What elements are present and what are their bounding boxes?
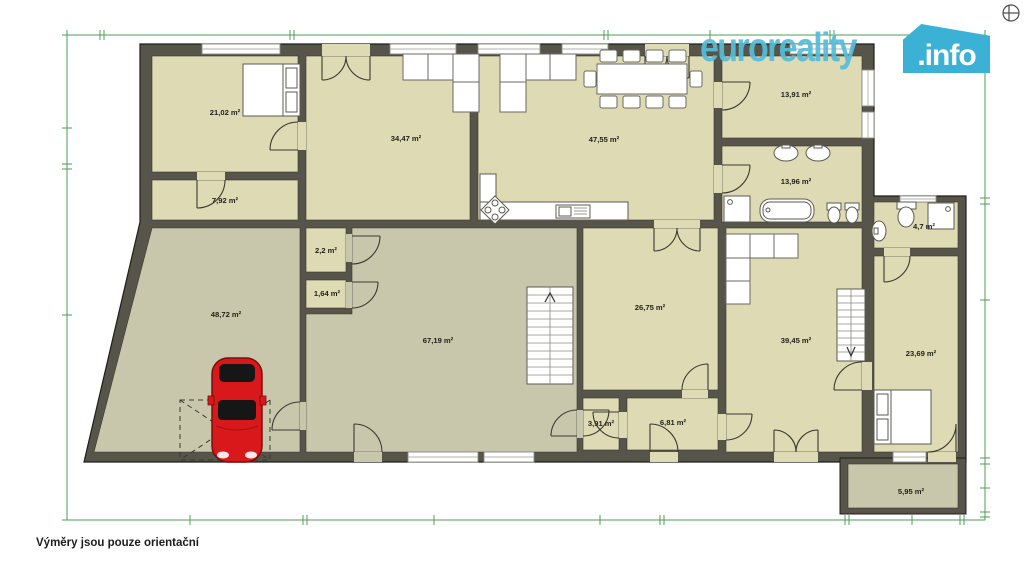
room-label: 4,7 m²: [913, 222, 935, 231]
room-label: 3,91 m²: [588, 419, 615, 428]
room-terrace-5-95: [848, 464, 958, 508]
room-label: 2,2 m²: [315, 246, 337, 255]
room-label: 26,75 m²: [635, 303, 666, 312]
bed: [874, 390, 931, 444]
disclaimer-note: Výměry jsou pouze orientační: [36, 537, 199, 549]
room-label: 1,64 m²: [314, 289, 341, 298]
shower-icon: [724, 196, 750, 222]
room-label: 5,95 m²: [898, 487, 925, 496]
room-label: 23,69 m²: [906, 349, 937, 358]
room-label: 67,19 m²: [423, 336, 454, 345]
room-label: 13,96 m²: [781, 177, 812, 186]
room-label: 48,72 m²: [211, 310, 242, 319]
room-label: 13,91 m²: [781, 90, 812, 99]
room-label: 39,45 m²: [781, 336, 812, 345]
floor-plan-drawing: 21,02 m² 7,92 m² 34,47 m² 47,55 m² 13,91…: [0, 0, 1024, 566]
room-label: 47,55 m²: [589, 135, 620, 144]
room-label: 7,92 m²: [212, 196, 239, 205]
bed: [243, 64, 300, 116]
room-label: 21,02 m²: [210, 108, 241, 117]
car-icon: [208, 358, 266, 462]
room-34-47: [306, 56, 470, 220]
room-label: 6,81 m²: [660, 418, 687, 427]
staircase: [527, 287, 573, 384]
staircase: [837, 289, 865, 361]
floor-plan-page: 21,02 m² 7,92 m² 34,47 m² 47,55 m² 13,91…: [0, 0, 1024, 566]
room-label: 34,47 m²: [391, 134, 422, 143]
